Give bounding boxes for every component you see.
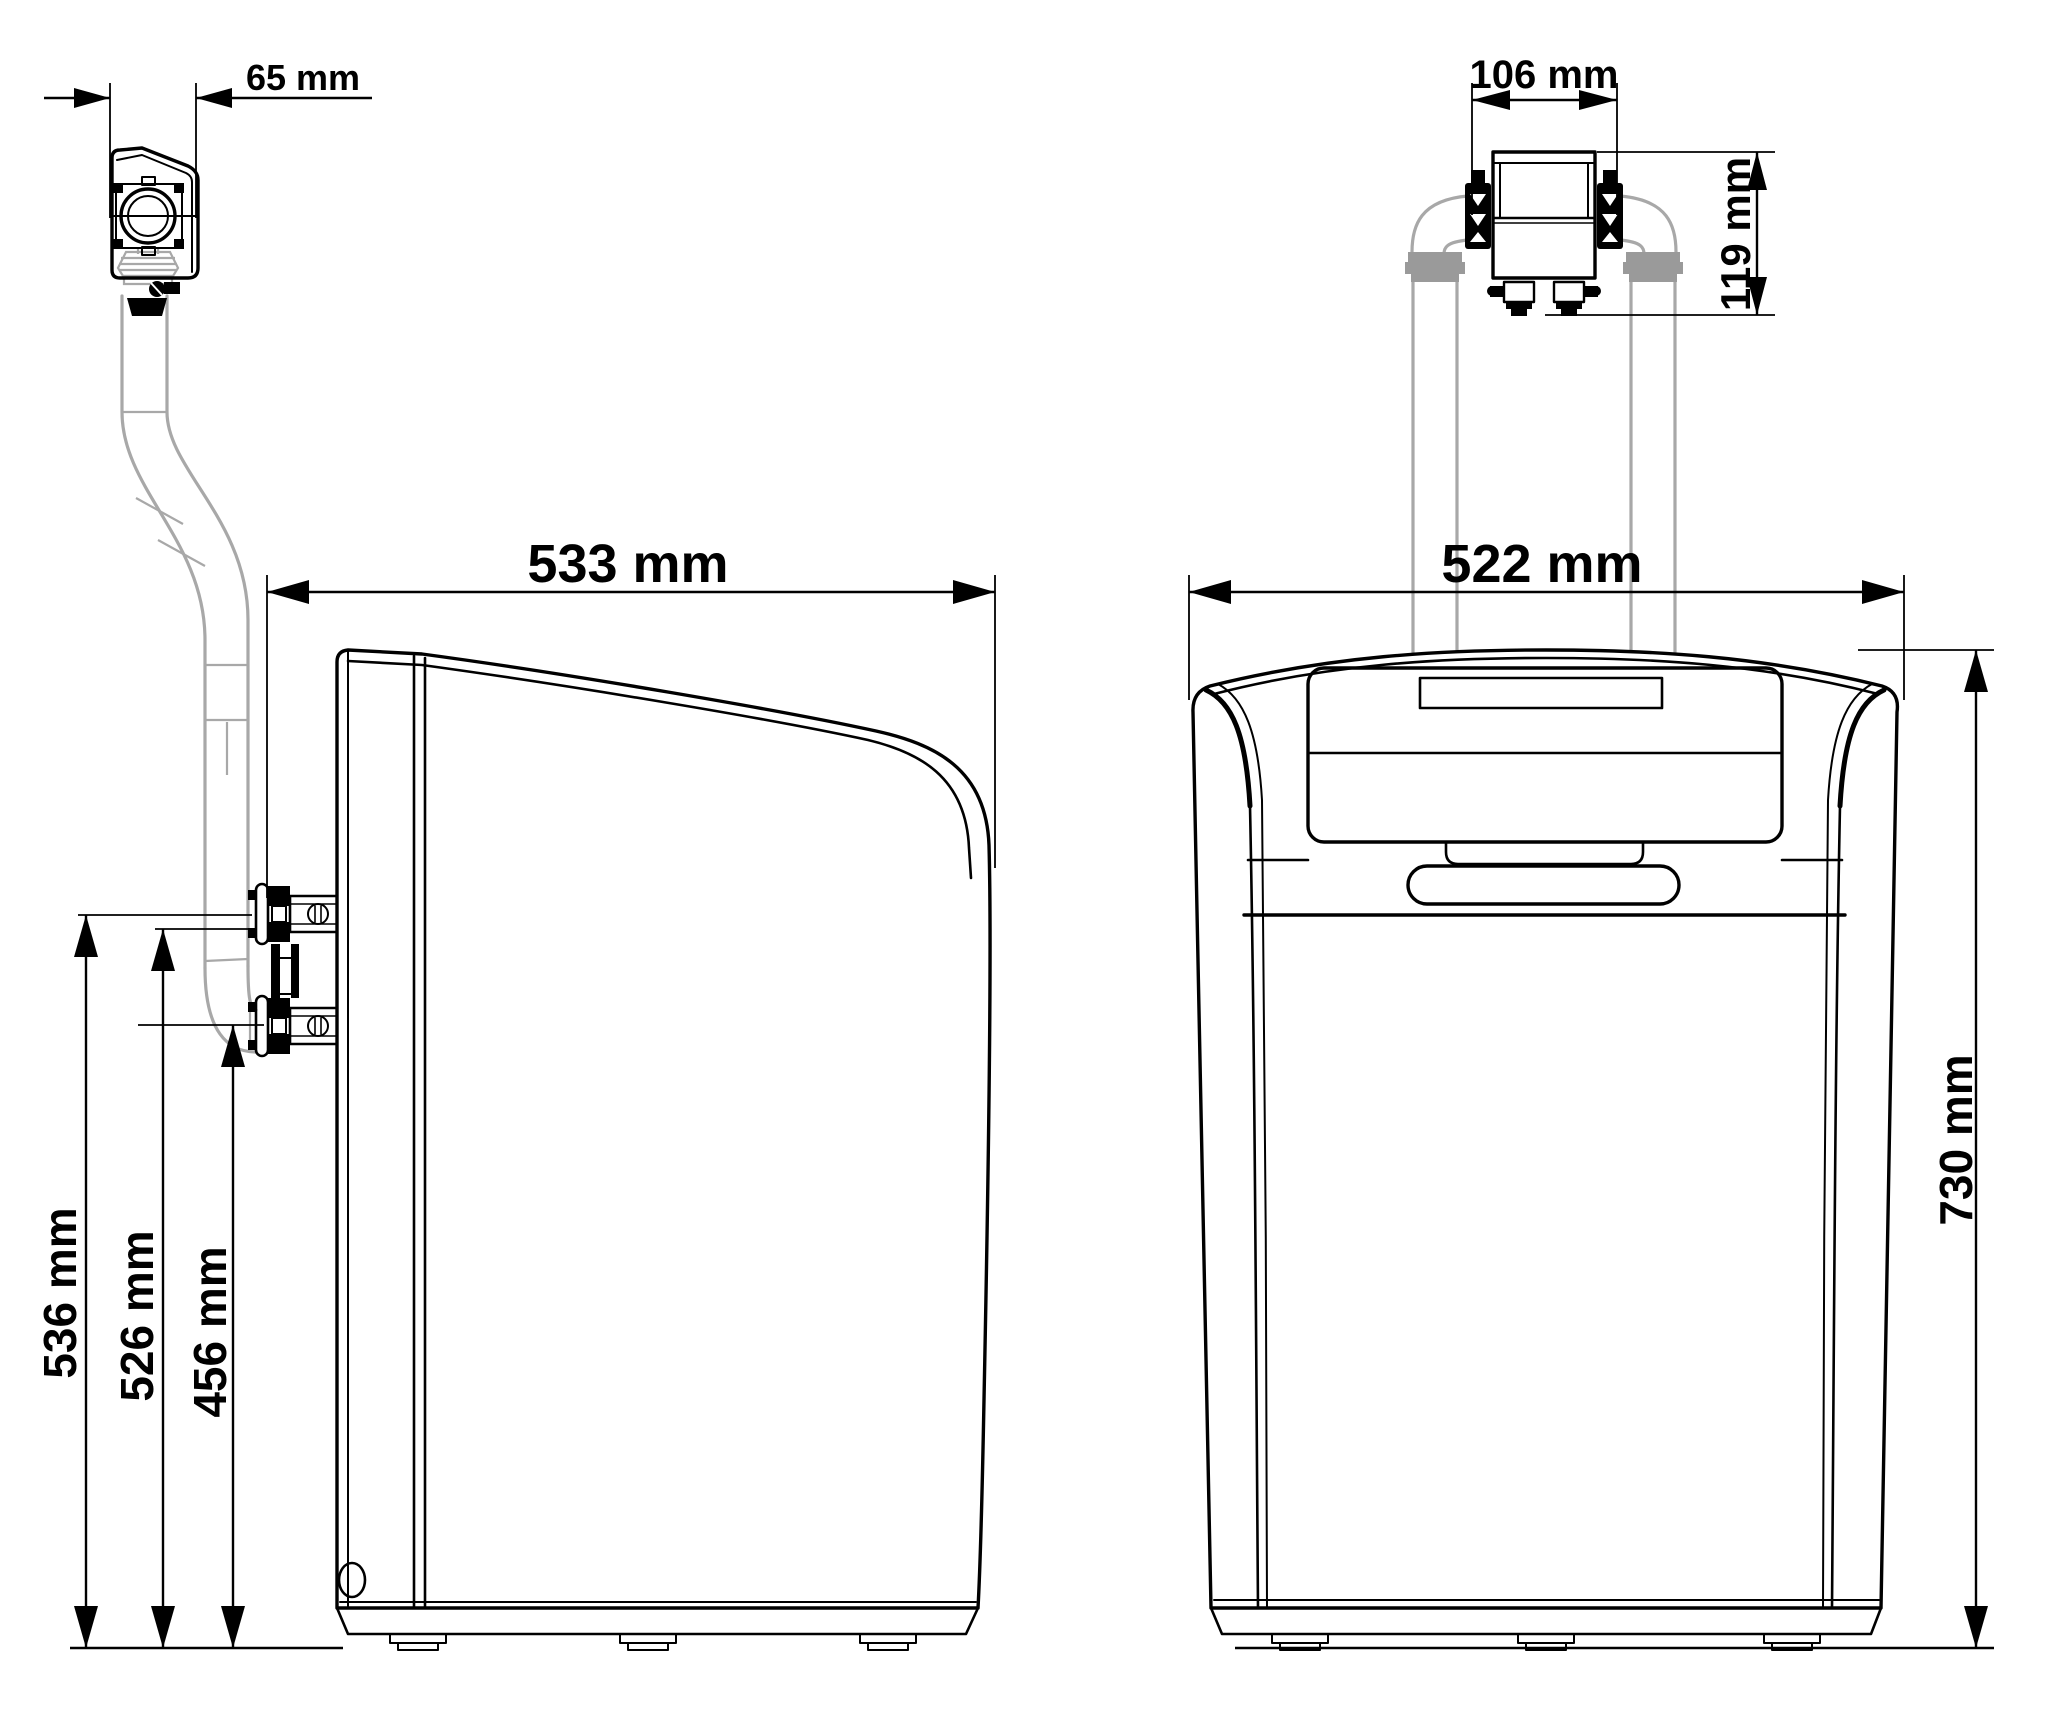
drain-hose xyxy=(118,248,256,1052)
dim-label-119mm: 119 mm xyxy=(1712,157,1759,311)
bottom-skirt xyxy=(337,1608,978,1634)
bottom-skirt-front xyxy=(1211,1608,1881,1634)
hose-clamp xyxy=(127,281,180,316)
clamp-bolt-left xyxy=(1471,170,1485,183)
clamp-bolt-right xyxy=(1603,170,1617,183)
riser-pipes xyxy=(1413,282,1675,672)
dim-label-456mm: 456 mm xyxy=(184,1246,236,1417)
dimension-drain-head-depth: 65 mm xyxy=(44,57,372,218)
dim-label-106mm: 106 mm xyxy=(1470,53,1619,97)
dimension-port-heights: 536 mm 526 mm 456 mm xyxy=(34,915,343,1648)
lower-port-valve xyxy=(248,996,337,1056)
dim-label-65mm: 65 mm xyxy=(246,57,360,98)
drain-fittings xyxy=(1487,282,1601,316)
upper-port-valve xyxy=(248,884,337,944)
dim-label-526mm: 526 mm xyxy=(111,1230,163,1401)
feet xyxy=(390,1634,916,1650)
dim-label-522mm: 522 mm xyxy=(1441,534,1642,594)
dim-label-730mm: 730 mm xyxy=(1930,1054,1982,1225)
valve-body xyxy=(1493,152,1595,278)
front-view: 106 mm 119 mm xyxy=(1189,53,1994,1650)
cabinet-side-profile xyxy=(337,650,990,1650)
dimension-drawing: 65 mm 533 mm 536 mm 526 mm 456 mm xyxy=(0,0,2049,1711)
cabinet-front xyxy=(1193,650,1897,1650)
dim-label-536mm: 536 mm xyxy=(34,1207,86,1378)
drawing-canvas: 65 mm 533 mm 536 mm 526 mm 456 mm xyxy=(0,0,2049,1711)
bypass-valve-assembly xyxy=(1405,152,1683,316)
dim-label-533mm: 533 mm xyxy=(527,534,728,594)
port-linkage xyxy=(271,944,299,998)
side-view: 65 mm 533 mm 536 mm 526 mm 456 mm xyxy=(34,57,995,1650)
